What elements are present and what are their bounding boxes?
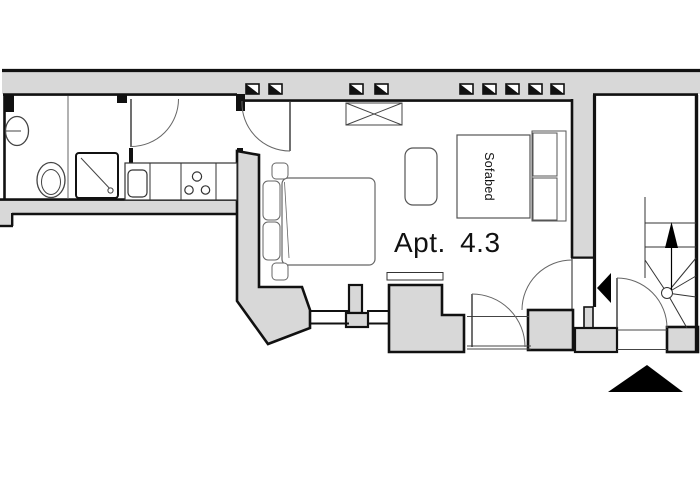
sofabed: Sofabed xyxy=(457,131,566,221)
mattress xyxy=(282,178,375,265)
balcony-door xyxy=(467,294,531,349)
window-vent-icon xyxy=(483,84,496,94)
floor-plan-page: Sofabed Apt. 4.3 xyxy=(0,0,700,500)
stairhall-entrance-door xyxy=(617,278,667,350)
window-vent-icon xyxy=(246,84,259,94)
stairs xyxy=(645,197,696,328)
apartment-exit-door xyxy=(522,260,572,310)
window-vent-icon xyxy=(269,84,282,94)
bathroom xyxy=(6,117,119,199)
building-entrance-arrow-icon xyxy=(608,365,683,392)
window-vent-icon xyxy=(551,84,564,94)
stairwell xyxy=(597,197,696,328)
main-room: Sofabed Apt. 4.3 xyxy=(263,103,566,280)
kitchen-sink xyxy=(128,170,147,197)
toilet xyxy=(37,163,65,198)
radiator xyxy=(387,273,443,281)
washbasin xyxy=(6,117,29,146)
window-vent-icon xyxy=(350,84,363,94)
stairs-up-arrow-icon xyxy=(665,222,678,290)
sofabed-label: Sofabed xyxy=(482,152,496,201)
kitchen xyxy=(125,163,237,200)
vent-shaft-box xyxy=(346,103,402,125)
bathroom-door xyxy=(117,94,179,147)
apartment-label: Apt. 4.3 xyxy=(394,227,501,258)
window-vent-icon xyxy=(460,84,473,94)
main-room-door xyxy=(242,101,290,151)
window-vent-icon xyxy=(529,84,542,94)
floor-plan: Sofabed Apt. 4.3 xyxy=(0,0,700,500)
side-table xyxy=(405,148,437,205)
apartment-entrance-arrow-icon xyxy=(597,273,611,303)
bed xyxy=(263,163,375,280)
shower xyxy=(76,153,118,198)
window-vent-icon xyxy=(506,84,519,94)
window-vent-icon xyxy=(375,84,388,94)
